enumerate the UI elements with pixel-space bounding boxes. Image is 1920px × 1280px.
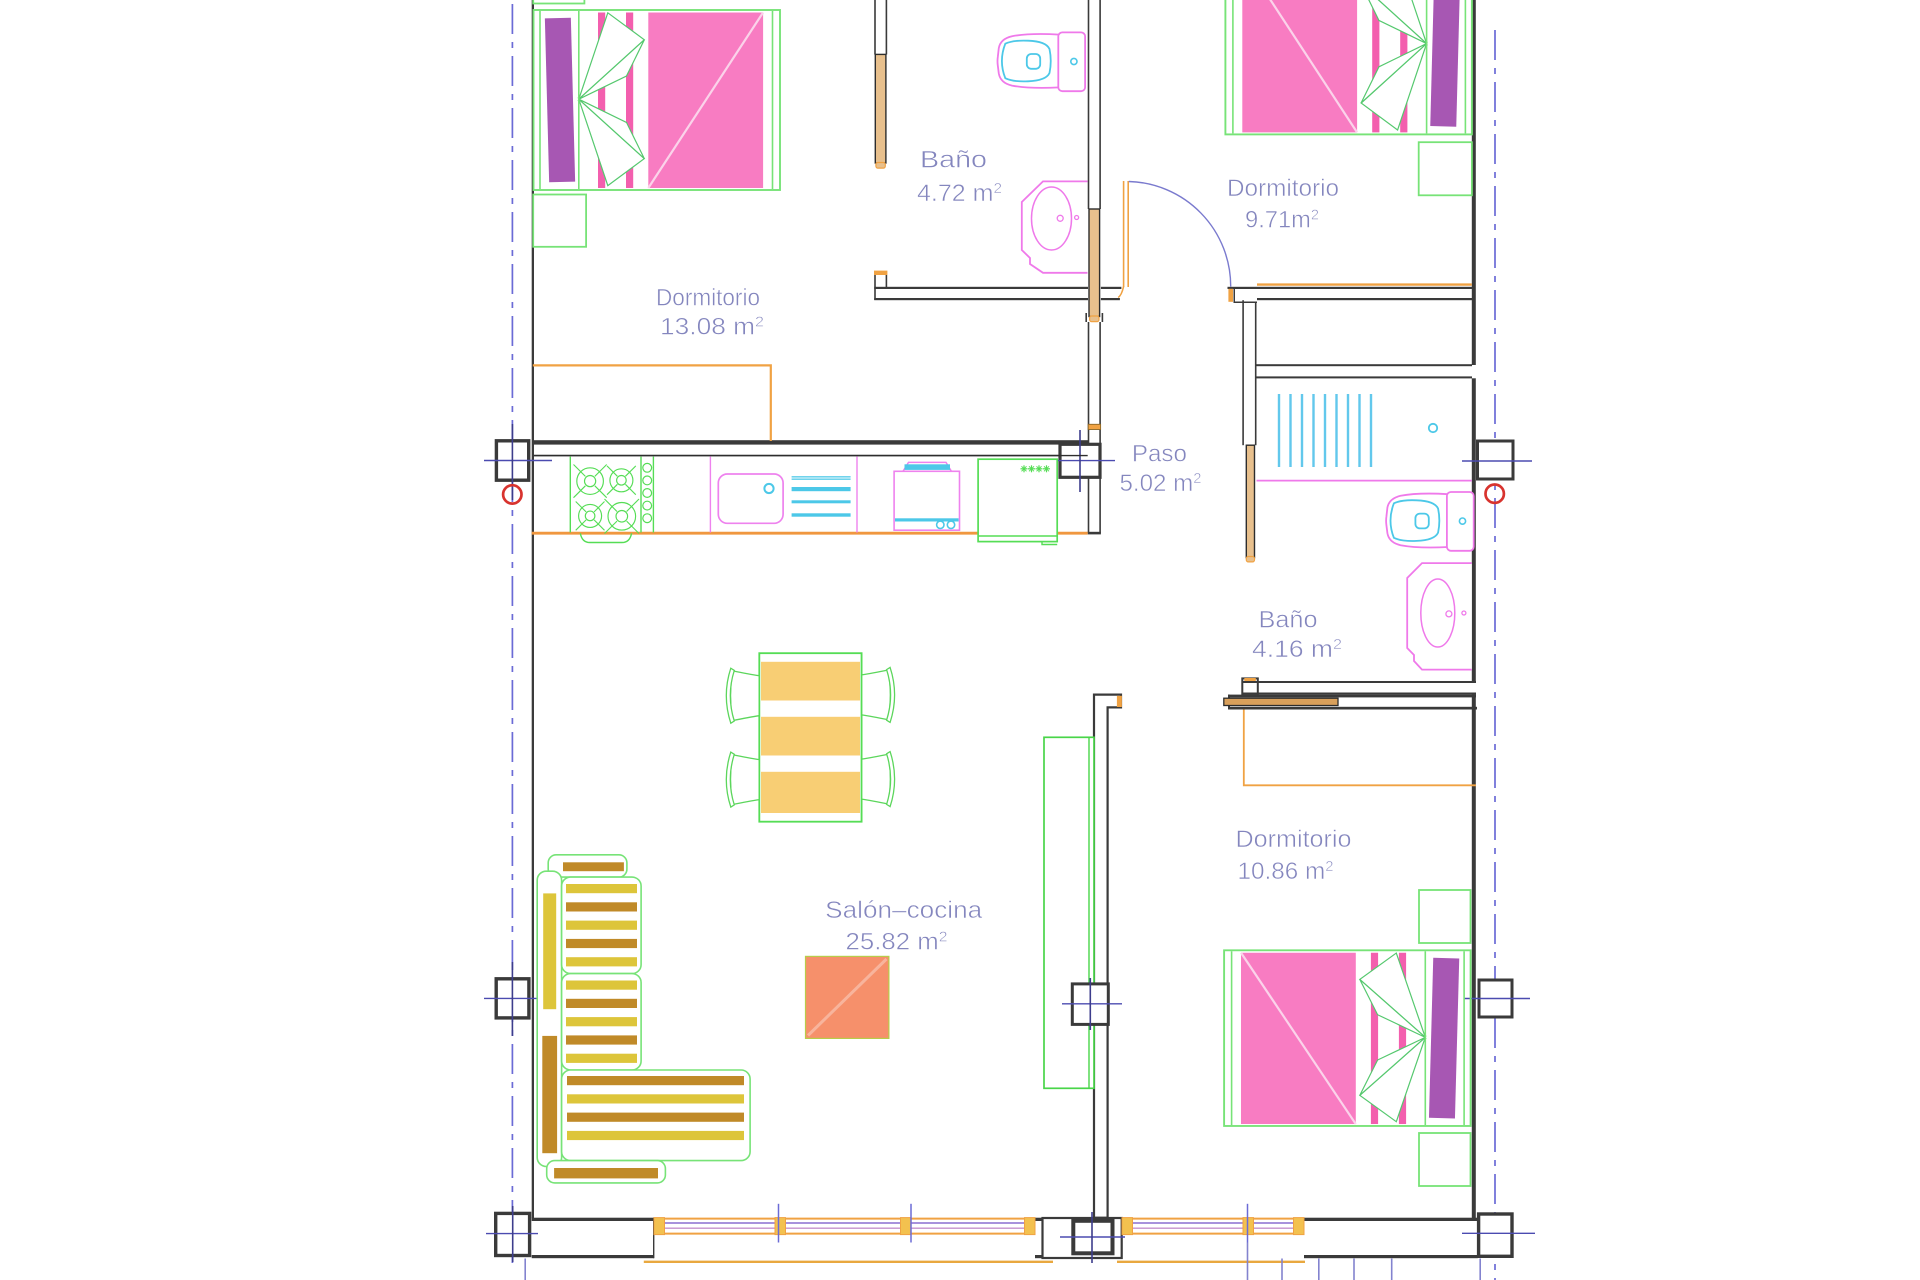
svg-text:4.72 m2: 4.72 m2 bbox=[917, 180, 1002, 207]
svg-text:10.86 m2: 10.86 m2 bbox=[1238, 858, 1334, 885]
svg-text:9.71m2: 9.71m2 bbox=[1245, 207, 1319, 234]
svg-text:Dormitorio: Dormitorio bbox=[1227, 175, 1339, 202]
svg-text:Salón–cocina: Salón–cocina bbox=[825, 897, 982, 924]
svg-text:13.08 m2: 13.08 m2 bbox=[660, 314, 764, 341]
svg-text:5.02 m2: 5.02 m2 bbox=[1120, 470, 1202, 497]
svg-text:Baño: Baño bbox=[1259, 607, 1318, 634]
svg-text:Dormitorio: Dormitorio bbox=[1236, 826, 1352, 853]
svg-text:4.16 m2: 4.16 m2 bbox=[1252, 636, 1342, 663]
svg-text:Baño: Baño bbox=[920, 147, 987, 174]
svg-text:Paso: Paso bbox=[1132, 441, 1187, 468]
svg-text:Dormitorio: Dormitorio bbox=[656, 285, 760, 312]
svg-text:25.82 m2: 25.82 m2 bbox=[846, 929, 948, 956]
